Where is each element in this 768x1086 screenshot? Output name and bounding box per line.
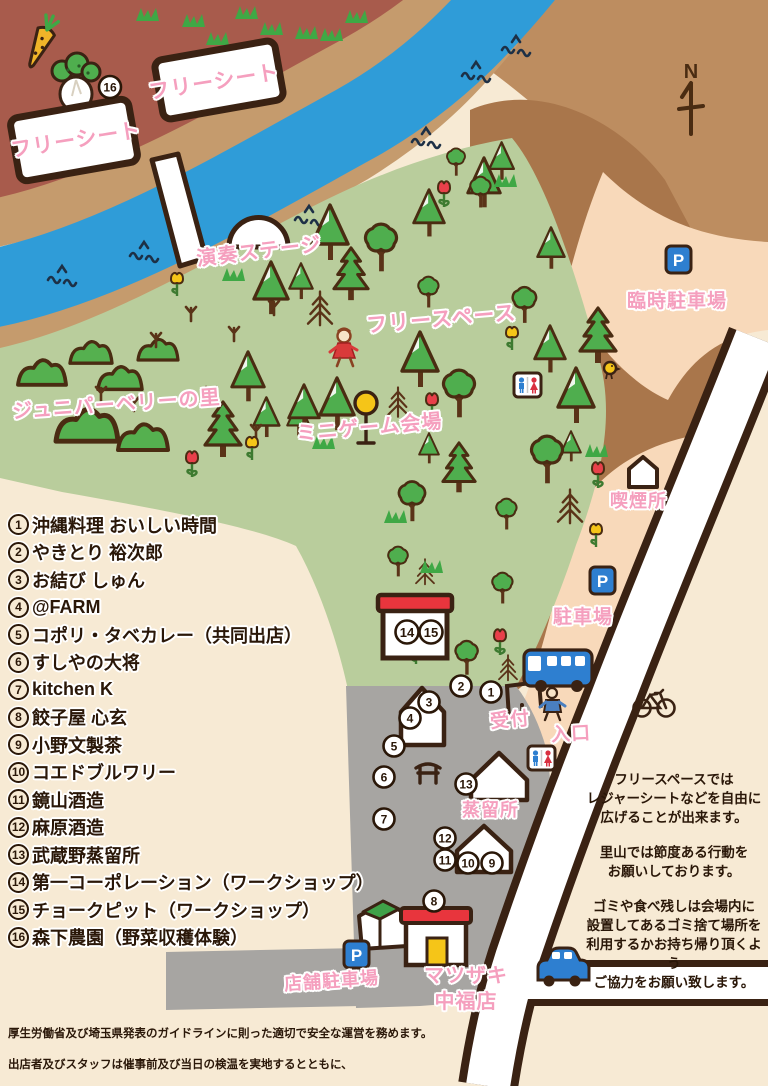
vendor-name: kitchen K [32, 679, 113, 700]
vendor-name: 麻原酒造 [32, 814, 104, 840]
vendor-row: 16森下農園（野菜収穫体験） [8, 924, 360, 952]
map-marker-15: 15 [420, 621, 443, 644]
svg-text:11: 11 [439, 854, 452, 868]
map-marker-9: 9 [482, 853, 503, 874]
vendor-number: 3 [8, 569, 29, 590]
bus-icon [524, 650, 592, 692]
vendor-row: 11鏡山酒造 [8, 786, 360, 814]
vendor-row: 2やきとり 裕次郎 [8, 539, 360, 567]
vendor-row: 4@FARM [8, 594, 360, 622]
svg-text:4: 4 [407, 712, 414, 726]
vendor-number: 6 [8, 652, 29, 673]
vendor-name: 鏡山酒造 [32, 787, 104, 813]
parking-p-label: P [597, 572, 608, 591]
vendor-row: 9小野文製茶 [8, 731, 360, 759]
map-marker-1: 1 [481, 682, 502, 703]
vendor-number: 15 [8, 899, 29, 920]
north-label: N [684, 61, 698, 83]
vendor-list: 1沖縄料理 おいしい時間 2やきとり 裕次郎 3お結び しゅん 4@FARM 5… [8, 511, 360, 951]
vendor-row: 12麻原酒造 [8, 814, 360, 842]
svg-text:9: 9 [489, 857, 496, 871]
vendor-name: すしやの大将 [32, 649, 140, 675]
vendor-name: 森下農園（野菜収穫体験） [32, 924, 248, 950]
map-marker-11: 11 [435, 850, 456, 871]
svg-text:12: 12 [438, 832, 452, 846]
label-entrance: 入口 [550, 718, 591, 747]
map-marker-4: 4 [400, 708, 421, 729]
svg-text:10: 10 [461, 857, 475, 871]
vendor-row: 10コエドブルワリー [8, 759, 360, 787]
svg-text:8: 8 [431, 895, 438, 909]
label-matsuzaki-store: マツザキ 中福店 [398, 963, 534, 1015]
label-smoking-area: 喫煙所 [610, 487, 667, 513]
svg-text:5: 5 [391, 740, 398, 754]
vendor-row: 7kitchen K [8, 676, 360, 704]
vendor-number: 14 [8, 872, 29, 893]
vendor-name: やきとり 裕次郎 [32, 539, 163, 565]
svg-text:14: 14 [400, 625, 415, 640]
map-marker-7: 7 [374, 809, 395, 830]
vendor-number: 9 [8, 734, 29, 755]
vendor-name: 武蔵野蒸留所 [32, 842, 140, 868]
vendor-number: 12 [8, 817, 29, 838]
vendor-number: 16 [8, 927, 29, 948]
map-marker-3: 3 [419, 692, 440, 713]
vendor-name: コポリ・タベカレー（共同出店） [32, 622, 302, 648]
map-marker-13: 13 [456, 774, 477, 795]
visitor-notice: フリースペースでは レジャーシートなどを自由に 広げることが出来ます。 里山では… [580, 770, 768, 1008]
vendor-number: 13 [8, 844, 29, 865]
vendor-number: 1 [8, 514, 29, 535]
vendor-name: 餃子屋 心玄 [32, 704, 127, 730]
vendor-row: 15チョークピット（ワークショップ） [8, 896, 360, 924]
disclaimer-line: 出店者及びスタッフは催事前及び当日の検温を実地するとともに、 [8, 1058, 608, 1073]
svg-text:1: 1 [488, 686, 495, 700]
parking-p-label: P [673, 251, 684, 270]
vendor-number: 10 [8, 762, 29, 783]
map-marker-14: 14 [396, 621, 419, 644]
vendor-row: 14第一コーポレーション（ワークショップ） [8, 869, 360, 897]
vendor-name: お結び しゅん [32, 567, 145, 593]
vendor-row: 3お結び しゅん [8, 566, 360, 594]
vendor-number: 4 [8, 597, 29, 618]
vendor-row: 6すしやの大将 [8, 649, 360, 677]
map-marker-12: 12 [435, 828, 456, 849]
map-marker-6: 6 [374, 767, 395, 788]
vendor-row: 8餃子屋 心玄 [8, 704, 360, 732]
label-temporary-parking: 臨時駐車場 [627, 286, 727, 313]
svg-text:16: 16 [103, 81, 117, 95]
svg-text:3: 3 [426, 696, 433, 710]
svg-text:6: 6 [381, 771, 388, 785]
toilet-icon-lower [528, 746, 555, 770]
vendor-name: @FARM [32, 597, 101, 618]
vendor-number: 11 [8, 789, 29, 810]
vendor-number: 8 [8, 707, 29, 728]
vendor-name: チョークピット（ワークショップ） [32, 897, 320, 923]
parking-badge-temporary: P [666, 246, 691, 273]
vendor-row: 13武蔵野蒸留所 [8, 841, 360, 869]
label-distillery: 蒸留所 [462, 796, 519, 822]
disclaimer-line: 厚生労働省及び埼玉県発表のガイドラインに則った適切で安全な運営を務めます。 [8, 1027, 608, 1042]
vendor-name: コエドブルワリー [32, 759, 176, 785]
matsuzaki-building [401, 908, 471, 965]
map-marker-2: 2 [451, 676, 472, 697]
label-parking: 駐車場 [553, 602, 613, 629]
notice-satoyama: 里山では節度ある行動を お願いしております。 [580, 843, 768, 881]
label-reception: 受付 [489, 703, 531, 733]
svg-text:15: 15 [424, 625, 438, 640]
svg-text:7: 7 [381, 813, 388, 827]
svg-text:2: 2 [458, 680, 465, 694]
vendor-name: 沖縄料理 おいしい時間 [32, 512, 217, 538]
map-marker-8: 8 [424, 891, 445, 912]
map-marker-16: 16 [99, 76, 121, 98]
vendor-number: 7 [8, 679, 29, 700]
vendor-row: 1沖縄料理 おいしい時間 [8, 511, 360, 539]
notice-garbage: ゴミや食べ残しは会場内に 設置してあるゴミ捨て場所を 利用するかお持ち帰り頂くよ… [580, 897, 768, 992]
parking-badge-main: P [590, 567, 615, 594]
vendor-number: 5 [8, 624, 29, 645]
covid-disclaimer: 厚生労働省及び埼玉県発表のガイドラインに則った適切で安全な運営を務めます。 出店… [8, 1012, 608, 1086]
vendor-number: 2 [8, 542, 29, 563]
vendor-name: 小野文製茶 [32, 732, 122, 758]
map-marker-5: 5 [384, 736, 405, 757]
map-marker-10: 10 [458, 853, 479, 874]
vendor-name: 第一コーポレーション（ワークショップ） [32, 869, 374, 895]
vendor-row: 5コポリ・タベカレー（共同出店） [8, 621, 360, 649]
event-map: N [0, 0, 768, 1086]
svg-text:13: 13 [459, 778, 473, 792]
toilet-icon-upper [514, 373, 541, 397]
notice-free-space: フリースペースでは レジャーシートなどを自由に 広げることが出来ます。 [580, 770, 768, 827]
